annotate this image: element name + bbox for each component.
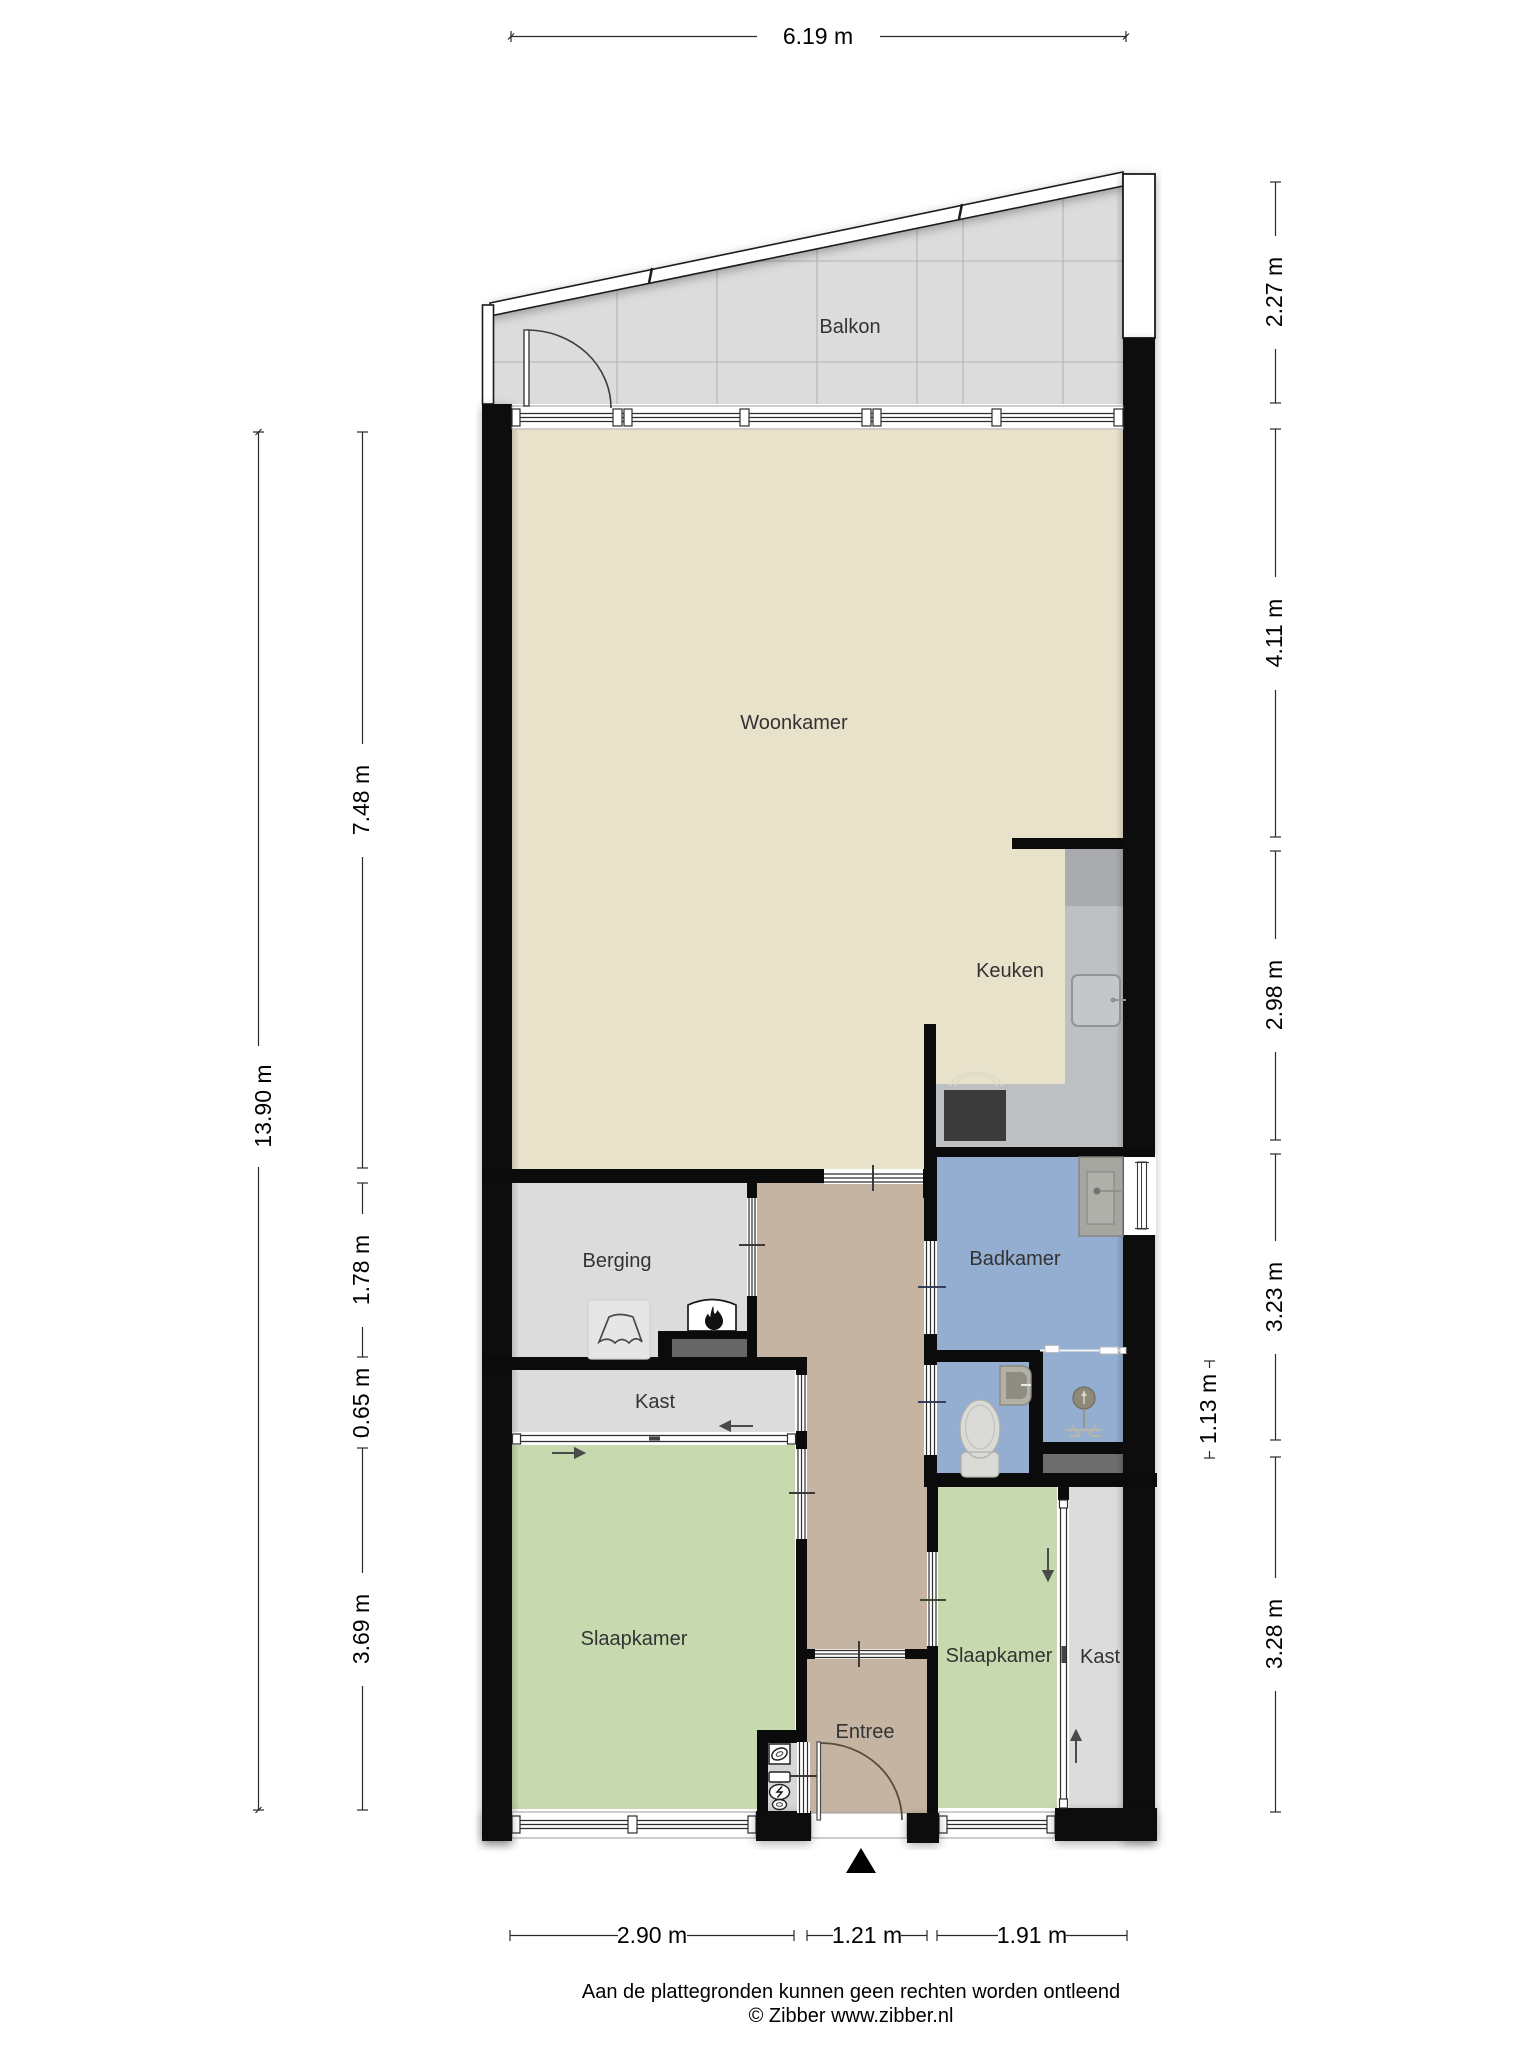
svg-text:Kast: Kast xyxy=(635,1391,675,1413)
svg-text:3.69 m: 3.69 m xyxy=(348,1594,374,1664)
svg-text:2.90 m: 2.90 m xyxy=(617,1922,687,1948)
svg-text:2.27 m: 2.27 m xyxy=(1261,257,1287,327)
svg-text:Keuken: Keuken xyxy=(976,960,1044,982)
svg-text:2.98 m: 2.98 m xyxy=(1261,960,1287,1030)
svg-text:© Zibber www.zibber.nl: © Zibber www.zibber.nl xyxy=(749,2005,954,2027)
svg-text:Slaapkamer: Slaapkamer xyxy=(946,1645,1053,1667)
svg-text:3.28 m: 3.28 m xyxy=(1261,1599,1287,1669)
svg-text:1.21 m: 1.21 m xyxy=(832,1922,902,1948)
svg-text:Balkon: Balkon xyxy=(819,316,880,338)
svg-text:Badkamer: Badkamer xyxy=(969,1248,1060,1270)
svg-text:Entree: Entree xyxy=(836,1721,895,1743)
svg-text:Woonkamer: Woonkamer xyxy=(740,712,848,734)
svg-text:6.19 m: 6.19 m xyxy=(783,23,853,49)
svg-text:1.91 m: 1.91 m xyxy=(997,1922,1067,1948)
svg-text:Berging: Berging xyxy=(583,1250,652,1272)
svg-text:Aan de plattegronden kunnen ge: Aan de plattegronden kunnen geen rechten… xyxy=(582,1981,1120,2003)
svg-text:7.48 m: 7.48 m xyxy=(348,765,374,835)
svg-text:3.23 m: 3.23 m xyxy=(1261,1262,1287,1332)
svg-text:1.13 m: 1.13 m xyxy=(1195,1374,1221,1444)
svg-text:Kast: Kast xyxy=(1080,1646,1120,1668)
svg-text:13.90 m: 13.90 m xyxy=(250,1064,276,1147)
svg-text:1.78 m: 1.78 m xyxy=(348,1235,374,1305)
svg-text:Slaapkamer: Slaapkamer xyxy=(581,1628,688,1650)
svg-text:0.65 m: 0.65 m xyxy=(348,1368,374,1438)
svg-text:4.11 m: 4.11 m xyxy=(1261,599,1287,668)
